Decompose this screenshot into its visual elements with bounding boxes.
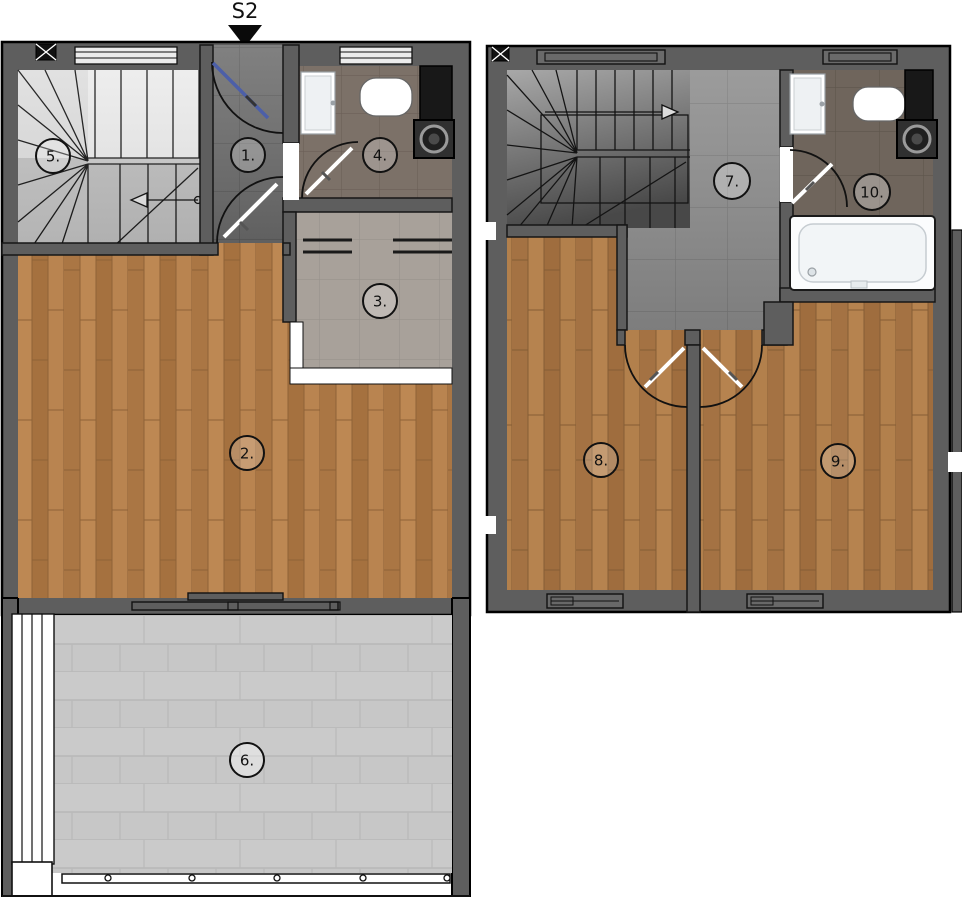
toilet-lower xyxy=(360,78,412,116)
lower-floor-plan: 5. 1. 4. 3. 2. 6. xyxy=(2,42,470,896)
svg-text:1.: 1. xyxy=(241,147,255,165)
bathroom-lower-door-opening xyxy=(283,143,299,200)
room-label-8: 8. xyxy=(584,443,618,477)
upper-floor-plan: 7. 10. 8. 9. xyxy=(484,46,962,612)
toilet-upper xyxy=(853,87,905,121)
room-label-10: 10. xyxy=(854,174,890,210)
room-label-2: 2. xyxy=(230,436,264,470)
svg-text:9.: 9. xyxy=(831,453,845,471)
left-wall-notch-1 xyxy=(484,222,496,240)
room-label-3: 3. xyxy=(363,284,397,318)
living-room-floor-extension xyxy=(290,384,452,598)
terrace-right-wall xyxy=(452,598,470,896)
floor-plan-drawing: S2 xyxy=(0,0,962,900)
counter-lower xyxy=(420,66,452,120)
living-room-floor xyxy=(18,255,290,598)
svg-text:2.: 2. xyxy=(240,445,254,463)
kitchen-open-edge-vertical xyxy=(290,322,303,368)
bathroom-upper-door-opening xyxy=(780,147,793,202)
staircase-room-upper xyxy=(507,70,690,228)
svg-text:6.: 6. xyxy=(240,752,254,770)
floor-plan-page: S2 xyxy=(0,0,962,900)
svg-text:7.: 7. xyxy=(725,173,739,191)
adjacent-unit-gap xyxy=(950,452,962,472)
svg-text:3.: 3. xyxy=(373,293,387,311)
svg-text:5.: 5. xyxy=(46,148,60,166)
living-room-door-threshold xyxy=(218,243,283,256)
bedroom-9-floor xyxy=(700,302,933,590)
section-marker-s2: S2 xyxy=(228,0,262,47)
section-marker-label: S2 xyxy=(232,0,259,23)
room-label-4: 4. xyxy=(363,138,397,172)
terrace-floor xyxy=(18,615,452,873)
room-label-9: 9. xyxy=(821,444,855,478)
terrace-side-window xyxy=(12,614,54,864)
left-wall-notch-2 xyxy=(484,516,496,534)
room-label-5: 5. xyxy=(36,139,70,173)
svg-text:8.: 8. xyxy=(594,452,608,470)
room-label-6: 6. xyxy=(230,743,264,777)
counter-upper xyxy=(905,70,933,120)
room-label-1: 1. xyxy=(231,138,265,172)
adjacent-unit-wall-sliver xyxy=(952,230,962,612)
bathtub xyxy=(790,216,935,290)
svg-text:4.: 4. xyxy=(373,147,387,165)
room-label-7: 7. xyxy=(714,163,750,199)
svg-text:10.: 10. xyxy=(860,184,884,202)
kitchen-open-edge-horizontal xyxy=(290,368,452,384)
